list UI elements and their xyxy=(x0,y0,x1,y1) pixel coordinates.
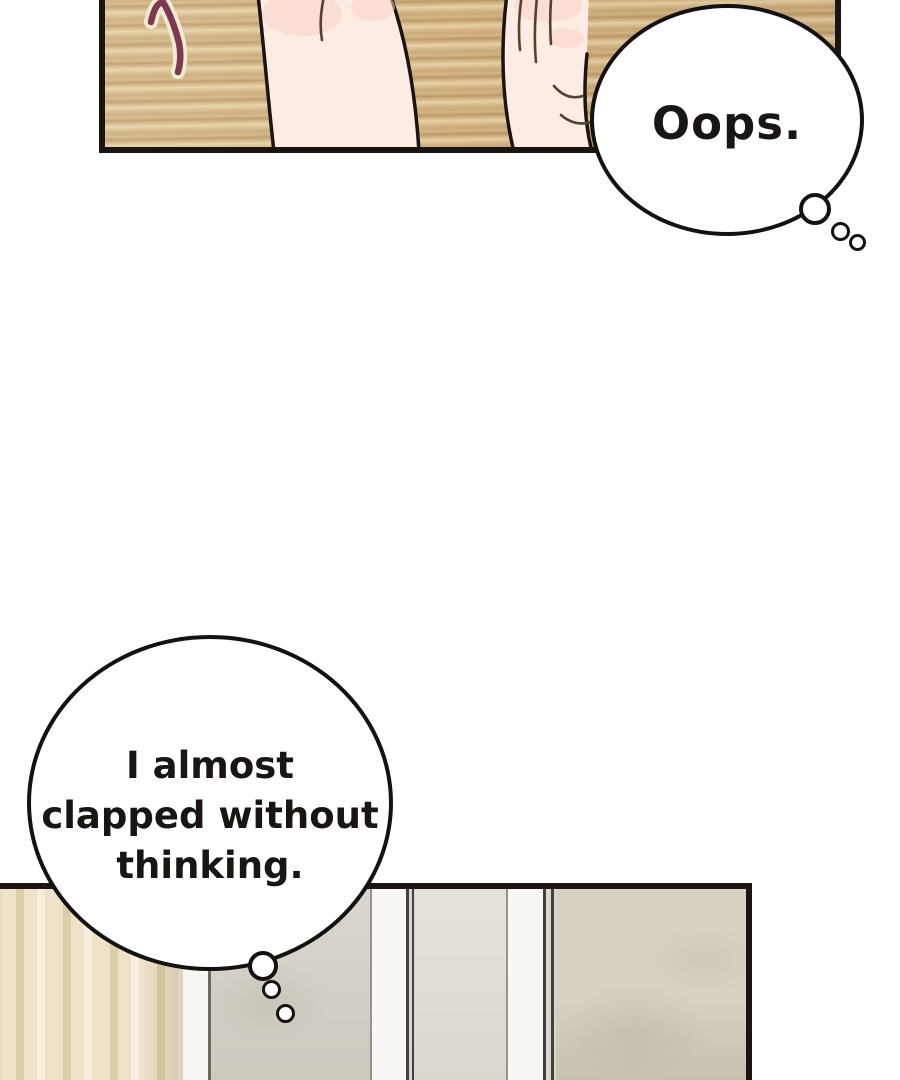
bubble-text-oops: Oops. xyxy=(652,91,802,150)
trim-line xyxy=(551,889,554,1080)
bubble-tail-dot xyxy=(831,222,850,241)
bubble-tail-dot xyxy=(849,234,866,251)
comic-page: Oops. I almost clapped without thinking. xyxy=(0,0,900,1080)
trim-line xyxy=(543,889,546,1080)
fingertip-blush xyxy=(548,28,584,48)
wall-panel-beige xyxy=(556,889,752,1080)
bubble-tail-nub xyxy=(799,193,831,225)
trim-line xyxy=(370,889,372,1080)
trim-line xyxy=(506,889,508,1080)
wall-trim-strip xyxy=(507,889,543,1080)
hands-shape xyxy=(503,0,592,147)
wall-trim-strip xyxy=(371,889,406,1080)
wall-panel-light xyxy=(415,889,507,1080)
trim-line xyxy=(406,889,409,1080)
bubble-tail-dot xyxy=(262,980,281,999)
bubble-tail-dot xyxy=(276,1004,295,1023)
bubble-tail-nub xyxy=(248,951,278,981)
thought-line-2: clapped without xyxy=(41,791,378,841)
thought-bubble-thinking: I almost clapped without thinking. xyxy=(27,635,393,971)
thought-line-3: thinking. xyxy=(116,841,303,891)
thought-line-1: I almost xyxy=(126,741,294,791)
trim-line xyxy=(412,889,414,1080)
